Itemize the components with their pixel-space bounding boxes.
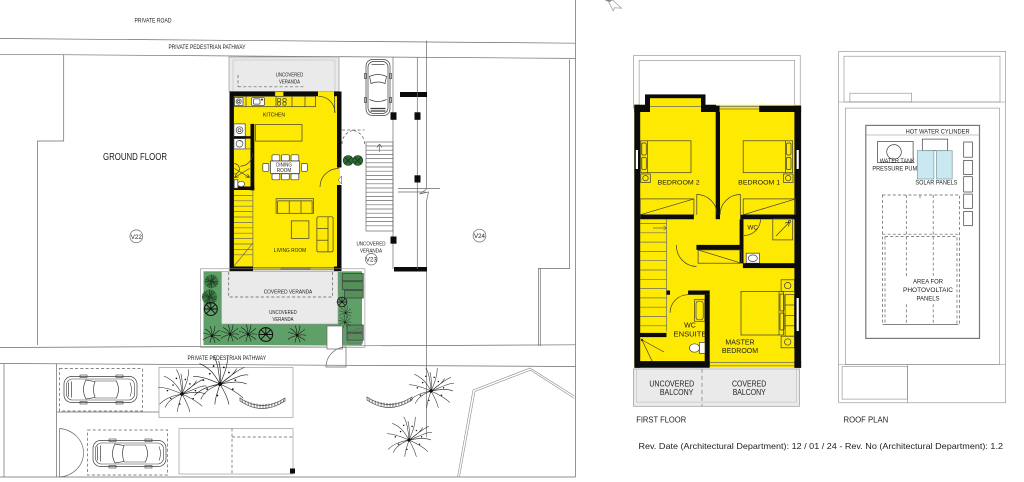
svg-text:KITCHEN: KITCHEN: [263, 112, 285, 118]
svg-text:V22: V22: [131, 234, 143, 241]
svg-text:Rev. Date (Architectural Depar: Rev. Date (Architectural Department): 12…: [639, 441, 1004, 451]
svg-text:COVERED VERANDA: COVERED VERANDA: [264, 290, 313, 296]
svg-text:AREA FOR: AREA FOR: [913, 279, 943, 286]
svg-text:ROOF PLAN: ROOF PLAN: [844, 416, 889, 425]
svg-text:PHOTOVOLTAIC: PHOTOVOLTAIC: [903, 287, 953, 294]
svg-text:V24: V24: [474, 233, 486, 240]
svg-text:BALCONY: BALCONY: [660, 388, 694, 397]
svg-text:WC: WC: [684, 323, 696, 330]
svg-text:LIVING ROOM: LIVING ROOM: [274, 248, 307, 254]
svg-text:WATER TANK: WATER TANK: [880, 158, 916, 165]
svg-text:PRIVATE ROAD: PRIVATE ROAD: [135, 18, 172, 25]
svg-text:FIRST FLOOR: FIRST FLOOR: [636, 416, 686, 425]
svg-text:BEDROOM: BEDROOM: [722, 348, 758, 355]
svg-text:PRIVATE PEDESTRIAN PATHWAY: PRIVATE PEDESTRIAN PATHWAY: [169, 44, 247, 51]
svg-text:UNCOVERED: UNCOVERED: [357, 241, 386, 247]
svg-text:VERANDA: VERANDA: [279, 80, 300, 86]
svg-text:COVERED: COVERED: [732, 379, 766, 388]
svg-text:WC: WC: [747, 225, 758, 232]
svg-text:UNCOVERED: UNCOVERED: [269, 310, 297, 316]
svg-text:ROOM: ROOM: [277, 168, 292, 174]
svg-text:VERANDA: VERANDA: [273, 317, 294, 323]
svg-text:PANELS: PANELS: [917, 296, 940, 303]
svg-text:V23: V23: [366, 257, 378, 264]
svg-text:BALCONY: BALCONY: [733, 388, 766, 397]
svg-text:MASTER: MASTER: [725, 340, 754, 347]
svg-text:UNCOVERED: UNCOVERED: [649, 379, 694, 388]
svg-text:SOLAR PANELS: SOLAR PANELS: [915, 179, 957, 186]
svg-text:PRESSURE PUMP: PRESSURE PUMP: [872, 165, 921, 172]
svg-text:ENSUITE: ENSUITE: [674, 332, 707, 339]
svg-text:HOT WATER CYLINDER: HOT WATER CYLINDER: [906, 129, 971, 135]
svg-text:BEDROOM 1: BEDROOM 1: [738, 179, 780, 186]
svg-text:BEDROOM 2: BEDROOM 2: [658, 179, 700, 186]
svg-text:GROUND FLOOR: GROUND FLOOR: [103, 152, 167, 163]
svg-text:UNCOVERED: UNCOVERED: [276, 73, 304, 79]
